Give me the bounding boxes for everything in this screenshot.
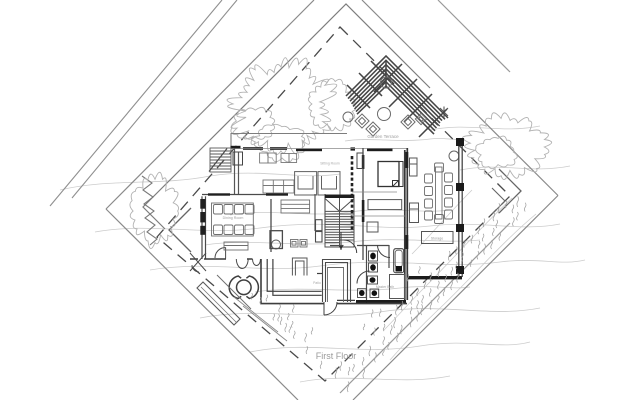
svg-text:First Floor: First Floor [316,351,357,361]
svg-text:Master Bath: Master Bath [376,285,394,289]
svg-text:Garden Terrace: Garden Terrace [367,134,399,139]
svg-text:Dining Room: Dining Room [223,216,244,220]
svg-text:Storage: Storage [431,237,444,241]
svg-text:Patio: Patio [313,281,321,285]
svg-text:Sitting Room: Sitting Room [320,162,340,166]
